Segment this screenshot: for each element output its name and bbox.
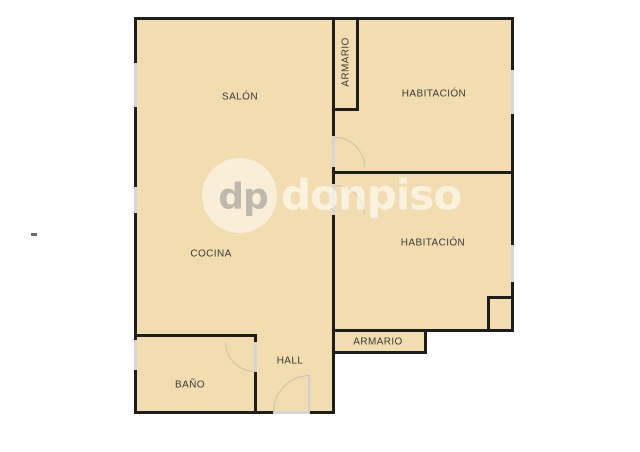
wall-shaft-left	[487, 296, 490, 332]
wall-shaft-top	[487, 296, 514, 299]
room-label-armario-bottom: ARMARIO	[353, 337, 402, 348]
wall-top	[134, 17, 514, 20]
window-salon-left-1	[134, 63, 137, 107]
room-label-habitacion-top: HABITACIÓN	[402, 89, 466, 100]
window-habitacion-top-right	[511, 70, 514, 114]
window-salon-left-2	[134, 187, 137, 213]
wall-right-segment-1	[511, 17, 514, 70]
wall-armario-top-right	[356, 17, 359, 111]
room-label-salon: SALÓN	[222, 92, 258, 103]
wall-bano-right-segment-2	[254, 372, 257, 414]
wall-bottom-segment-1	[134, 411, 273, 414]
room-label-bano: BAÑO	[175, 380, 205, 391]
window-bano-left	[134, 340, 137, 370]
wall-right-segment-2	[511, 114, 514, 245]
room-label-cocina: COCINA	[190, 249, 231, 260]
wall-left-segment-1	[134, 17, 137, 63]
wall-bano-top	[134, 334, 257, 337]
room-label-hall: HALL	[277, 356, 304, 367]
wall-armario-bottom-bottom	[332, 351, 427, 354]
watermark-brand-name: donpiso	[281, 171, 461, 220]
wall-bano-right-segment-1	[254, 334, 257, 342]
room-label-habitacion-bottom: HABITACIÓN	[401, 238, 465, 249]
floor-plan: SALÓN ARMARIO HABITACIÓN HABITACIÓN COCI…	[0, 0, 640, 452]
stray-mark	[31, 233, 37, 236]
wall-center-segment-1	[332, 17, 335, 136]
wall-right-segment-3	[511, 282, 514, 332]
wall-armario-top-bottom	[332, 108, 359, 111]
wall-left-segment-2	[134, 107, 137, 187]
wall-left-segment-4	[134, 370, 137, 414]
window-habitacion-bottom-right	[511, 245, 514, 282]
watermark-dp-logo: dp	[218, 177, 268, 218]
room-label-armario-top: ARMARIO	[341, 37, 352, 86]
wall-center-segment-3	[332, 215, 335, 414]
wall-left-segment-3	[134, 213, 137, 340]
